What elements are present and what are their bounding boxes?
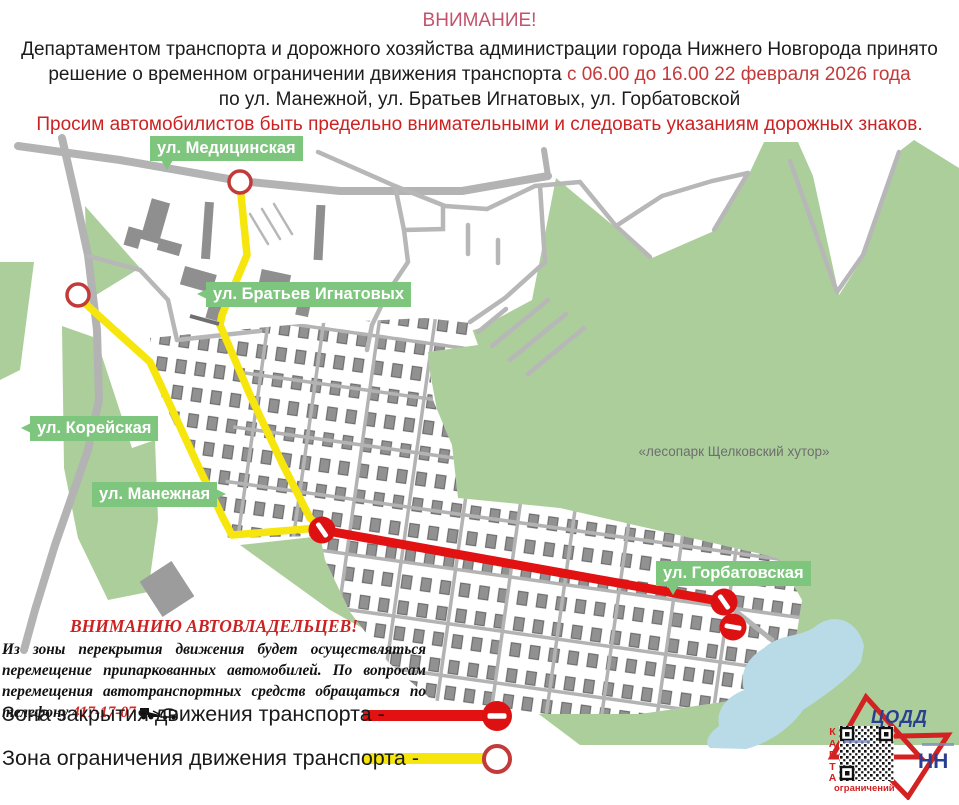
forest-label: «лесопарк Щелковский хутор» xyxy=(638,444,829,459)
street-label-medicinskaya: ул. Медицинская xyxy=(150,136,303,161)
decision-paragraph: Департаментом транспорта и дорожного хоз… xyxy=(20,37,940,87)
street-label-bratyev-ignatovykh: ул. Братьев Игнатовых xyxy=(206,282,411,307)
logo-org-text: ЦОДД xyxy=(871,707,928,728)
legend-closure-label: Зона закрытия движения транспорта - xyxy=(2,702,385,727)
traffic-restriction-announcement: { "header": { "attention": "ВНИМАНИЕ!", … xyxy=(0,0,959,800)
restriction-point-icon xyxy=(484,746,510,772)
codd-logo: ЦОДД НН КАРТА ограничений xyxy=(822,684,959,800)
legend-restriction-label: Зона ограничения движения транспорта - xyxy=(2,746,419,771)
no-entry-icon xyxy=(482,701,512,731)
attention-title: ВНИМАНИЕ! xyxy=(0,8,959,33)
restriction-point-icon xyxy=(229,171,251,193)
logo-city-text: НН xyxy=(918,750,948,774)
qr-side-caption: КАРТА xyxy=(826,727,839,785)
logo-smallprint xyxy=(844,740,870,743)
decision-dates: с 06.00 до 16.00 22 февраля 2026 года xyxy=(567,64,911,85)
street-label-manezhnaya: ул. Манежная xyxy=(92,482,217,507)
header: ВНИМАНИЕ! Департаментом транспорта и дор… xyxy=(0,8,959,137)
street-label-gorbatovskaya: ул. Горбатовская xyxy=(656,561,811,586)
streets-line: по ул. Манежной, ул. Братьев Игнатовых, … xyxy=(20,87,940,112)
green-wedge-koreyskaya xyxy=(62,326,158,600)
logo-smallprint xyxy=(922,743,954,746)
qr-bottom-caption: ограничений xyxy=(834,783,895,794)
green-strip-left xyxy=(0,262,34,380)
street-label-koreyskaya: ул. Корейская xyxy=(30,416,158,441)
owners-notice-title: ВНИМАНИЮ АВТОВЛАДЕЛЬЦЕВ! xyxy=(2,616,426,637)
warning-line: Просим автомобилистов быть предельно вни… xyxy=(20,112,940,137)
restriction-point-icon xyxy=(67,284,89,306)
